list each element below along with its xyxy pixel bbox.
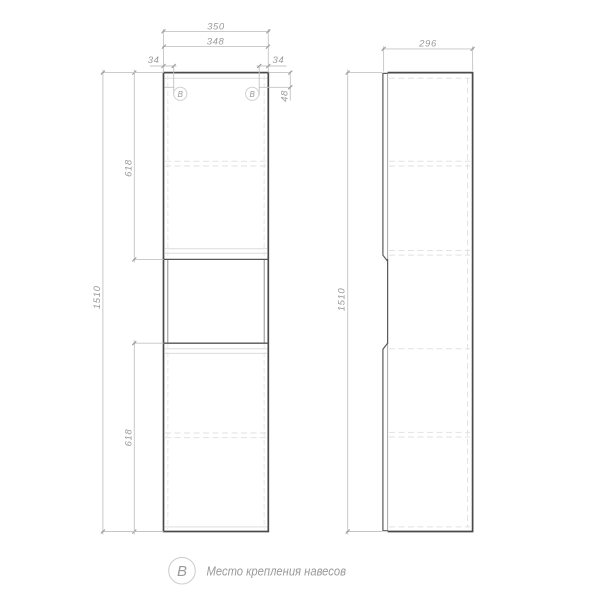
svg-text:Место крепления навесов: Место крепления навесов (207, 565, 347, 579)
svg-text:348: 348 (207, 37, 225, 48)
svg-text:В: В (250, 90, 256, 99)
svg-text:48: 48 (279, 90, 290, 102)
svg-text:618: 618 (123, 429, 134, 447)
svg-text:34: 34 (148, 55, 160, 66)
svg-text:296: 296 (418, 38, 437, 49)
svg-text:350: 350 (207, 22, 225, 33)
svg-text:В: В (178, 90, 184, 99)
svg-text:1510: 1510 (92, 285, 103, 309)
svg-text:34: 34 (273, 55, 285, 66)
svg-text:1510: 1510 (337, 288, 348, 312)
svg-text:В: В (177, 563, 187, 580)
svg-text:618: 618 (123, 159, 134, 177)
